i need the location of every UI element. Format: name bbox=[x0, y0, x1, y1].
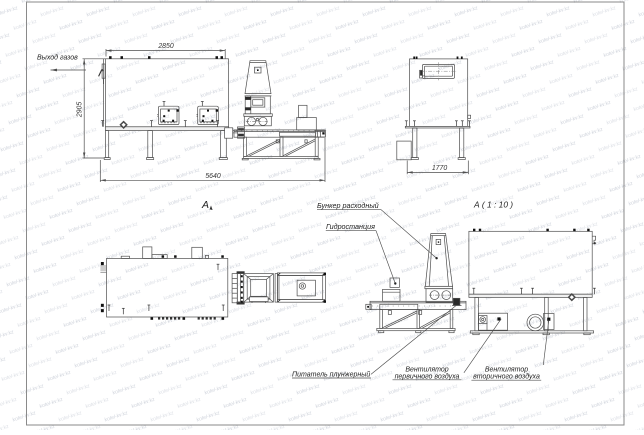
svg-text:Выход газов: Выход газов bbox=[37, 54, 78, 62]
svg-text:первичного воздуха: первичного воздуха bbox=[395, 373, 460, 381]
svg-text:1770: 1770 bbox=[432, 165, 447, 172]
svg-text:Вентилятор: Вентилятор bbox=[405, 366, 448, 373]
svg-text:2905: 2905 bbox=[77, 102, 84, 118]
svg-text:Бункер расходный: Бункер расходный bbox=[317, 201, 379, 210]
svg-text:вторичного воздуха: вторичного воздуха bbox=[473, 373, 540, 381]
svg-text:А ( 1 : 10 ): А ( 1 : 10 ) bbox=[473, 200, 513, 210]
svg-text:5640: 5640 bbox=[205, 173, 220, 180]
svg-text:Гидростанция: Гидростанция bbox=[326, 222, 375, 231]
svg-text:2850: 2850 bbox=[157, 43, 173, 50]
svg-text:Питатель плунжерный: Питатель плунжерный bbox=[292, 371, 370, 379]
svg-text:Вентилятор: Вентилятор bbox=[485, 367, 528, 374]
svg-text:А: А bbox=[201, 199, 209, 211]
